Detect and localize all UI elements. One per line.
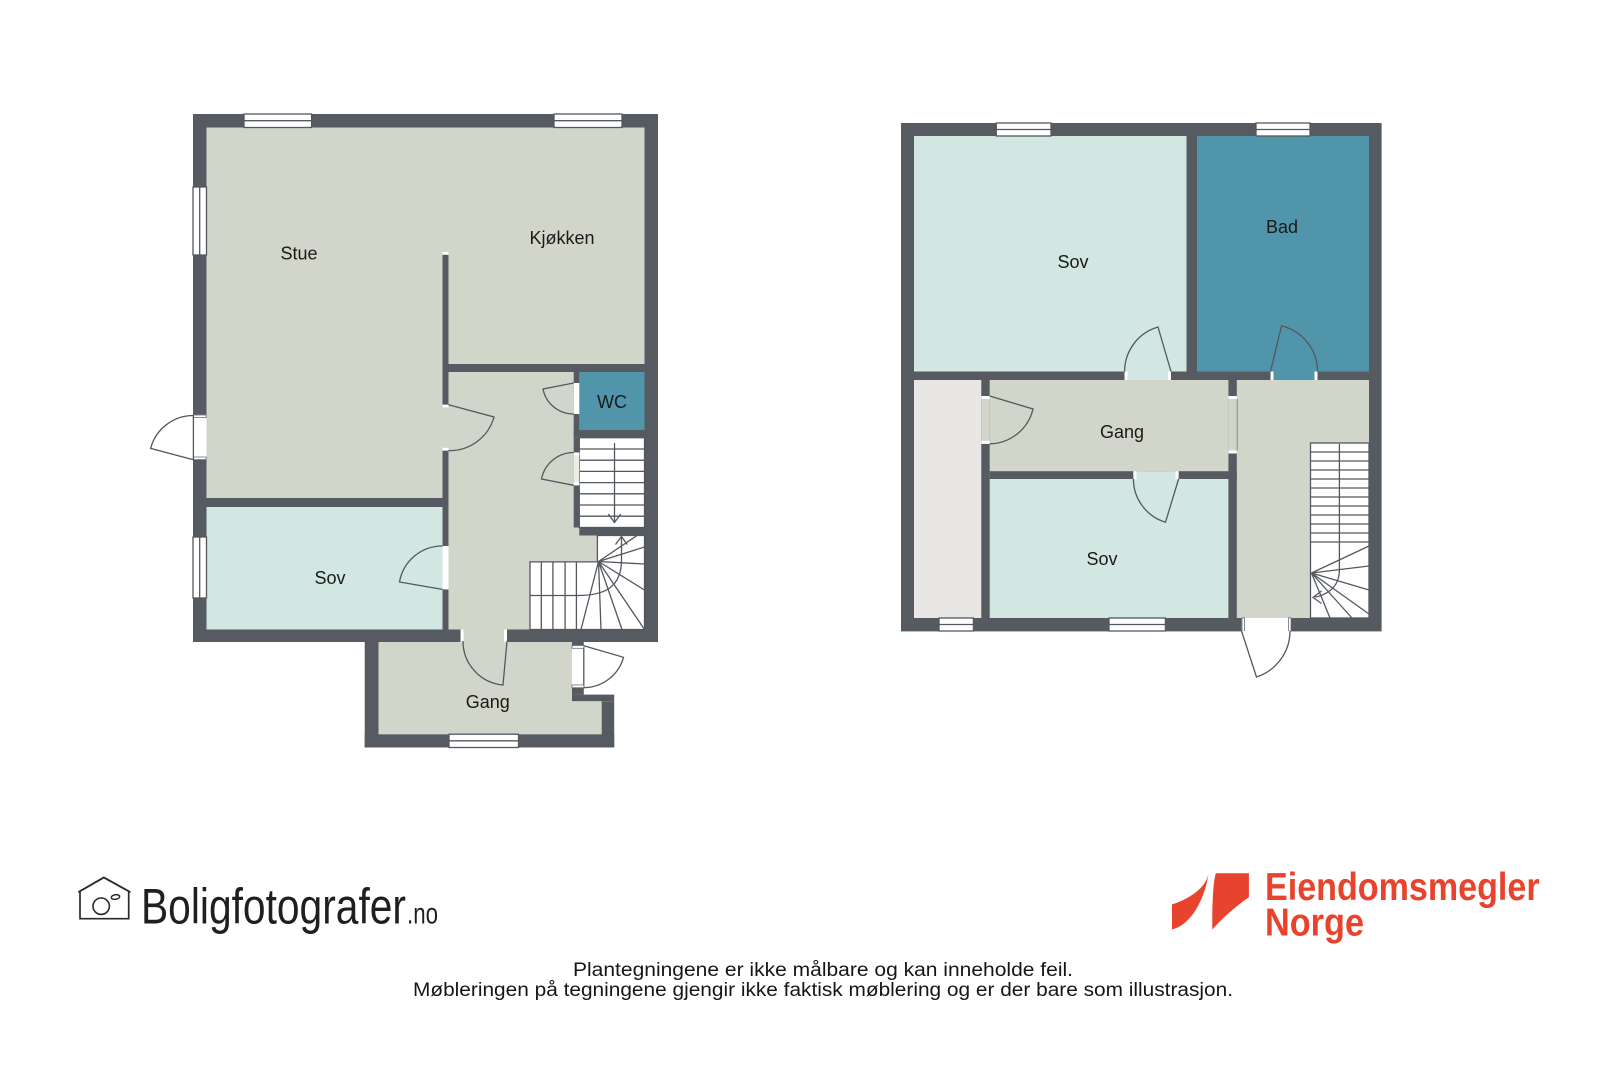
svg-text:Sov: Sov xyxy=(1057,252,1088,272)
svg-text:WC: WC xyxy=(597,392,627,412)
svg-text:Stue: Stue xyxy=(280,244,317,264)
svg-text:Kjøkken: Kjøkken xyxy=(529,228,594,248)
svg-text:.no: .no xyxy=(407,898,438,931)
svg-text:Gang: Gang xyxy=(1100,422,1144,442)
svg-text:Bad: Bad xyxy=(1266,217,1298,237)
svg-text:Sov: Sov xyxy=(314,568,345,588)
svg-text:Boligfotografer: Boligfotografer xyxy=(141,879,406,935)
svg-text:Plantegningene er ikke målbare: Plantegningene er ikke målbare og kan in… xyxy=(573,960,1073,981)
svg-text:Gang: Gang xyxy=(466,692,510,712)
svg-text:Sov: Sov xyxy=(1086,549,1117,569)
svg-text:Norge: Norge xyxy=(1265,902,1364,945)
svg-text:Møbleringen på tegningene gjen: Møbleringen på tegningene gjengir ikke f… xyxy=(413,980,1233,1001)
